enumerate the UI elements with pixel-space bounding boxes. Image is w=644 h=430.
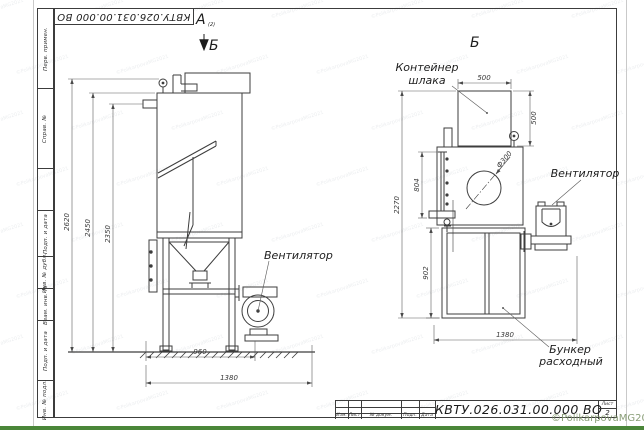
container-label-2: шлака [408,74,445,87]
side-view-dimensions [398,79,577,344]
fan-front [235,285,278,341]
inclined-screen [158,141,216,178]
side-view [429,91,571,318]
bottom-accent-bar [0,426,644,430]
tb-col-list: Лист [348,413,361,418]
dim-960: 960 [193,348,207,356]
drain-valve [444,200,453,252]
dim-2450: 2450 [84,219,92,237]
tb-col-dokum: № докум. [361,413,401,418]
side-pipe-stub [143,100,157,108]
view-b-arrow-label: Б [209,38,219,54]
fan-right-label: Вентилятор [551,167,620,180]
fan-left-leader [258,261,269,311]
support-frame [160,238,238,351]
chamber-top-stub [444,128,452,147]
dim-902: 902 [422,266,430,280]
tb-col-data: Дата [419,413,435,418]
author-watermark: ©PolikarpovaMG2021 [551,413,644,424]
container-label-1: Контейнер [396,61,459,74]
drawing-sheet: ©PolikarpovaMG2021©PolikarpovaMG2021©Pol… [0,0,644,430]
sheet-word: Лист [598,402,617,407]
fan-side [521,202,571,252]
tb-col-izm: Изм. [335,413,348,418]
dim-500-width: 500 [477,74,491,82]
chamber-cabinet [157,93,242,238]
view-a-label: А [195,12,206,28]
view-a-sub: (2) [208,22,215,28]
fan-right-leader [552,180,581,205]
discharge-funnel [169,242,229,288]
dim-1380-right: 1380 [496,331,514,339]
pressure-gauge-front [159,79,167,93]
container-leader [452,86,487,113]
dim-500-height: 500 [530,111,538,125]
tb-col-podp: Подп. [401,413,419,418]
hopper-leader [503,308,549,347]
dim-2620: 2620 [63,213,71,231]
level-gauge [429,152,455,218]
drawing-canvas: 2620 2450 2350 960 1380 Вентилятор А (2)… [0,0,644,430]
consumable-hopper [442,228,525,318]
top-duct [185,73,250,93]
dim-dia300: Ф300 [495,149,514,169]
slag-container [458,91,511,146]
front-view [68,73,315,358]
fan-left-label: Вентилятор [264,249,333,262]
dim-1380-left: 1380 [220,374,238,382]
side-door [149,240,157,292]
interior-lance [184,157,193,249]
hopper-label-2: расходный [538,355,603,368]
dim-2270: 2270 [393,196,401,214]
view-b-title: Б [470,35,480,51]
dim-2350: 2350 [104,225,112,243]
hopper-leader-dot [502,307,504,309]
container-leader-dot [486,112,488,114]
dim-804: 804 [413,178,421,191]
